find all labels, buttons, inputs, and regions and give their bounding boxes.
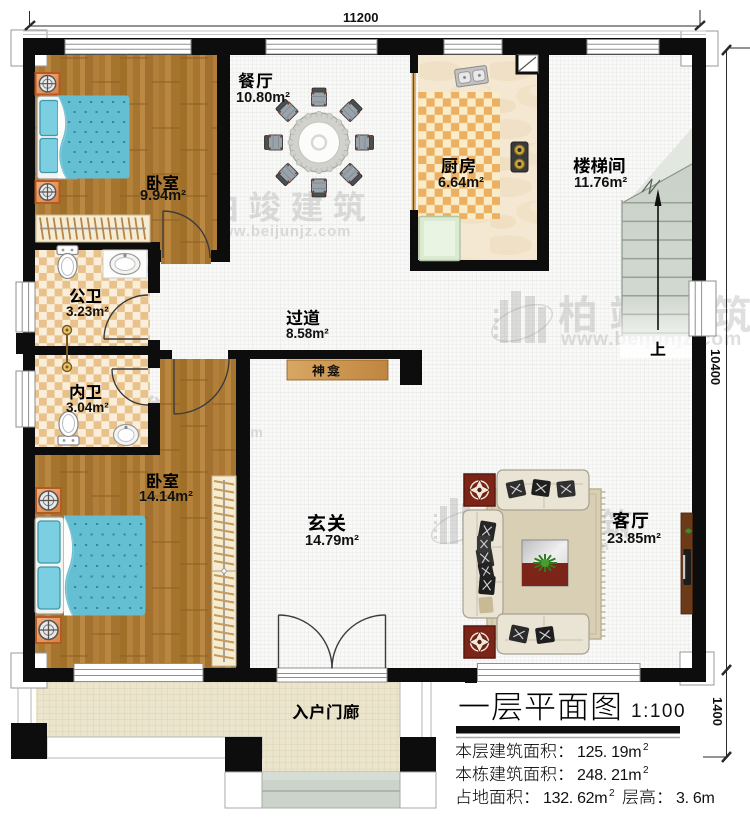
svg-text:132. 62m: 132. 62m: [543, 790, 607, 807]
svg-text:3.04m²: 3.04m²: [66, 400, 109, 415]
svg-text:6.64m²: 6.64m²: [438, 175, 484, 191]
svg-text:11200: 11200: [343, 10, 378, 25]
svg-text:3.23m²: 3.23m²: [66, 304, 109, 319]
svg-text:14.14m²: 14.14m²: [139, 489, 193, 505]
svg-text:2: 2: [609, 788, 615, 799]
svg-text:10.80m²: 10.80m²: [236, 90, 290, 106]
svg-text:1:100: 1:100: [631, 701, 686, 722]
svg-text:125. 19m: 125. 19m: [577, 744, 641, 761]
svg-text:11.76m²: 11.76m²: [574, 175, 627, 191]
svg-text:9.94m²: 9.94m²: [140, 188, 186, 204]
svg-text:2: 2: [643, 742, 649, 753]
svg-text:23.85m²: 23.85m²: [607, 531, 661, 547]
svg-text:248. 21m: 248. 21m: [577, 767, 641, 784]
svg-text:3. 6m: 3. 6m: [676, 790, 715, 807]
svg-text:8.58m²: 8.58m²: [286, 326, 329, 341]
svg-text:2: 2: [643, 765, 649, 776]
svg-text:1400: 1400: [710, 697, 725, 726]
svg-text:10400: 10400: [708, 349, 723, 385]
svg-text:14.79m²: 14.79m²: [305, 533, 359, 549]
